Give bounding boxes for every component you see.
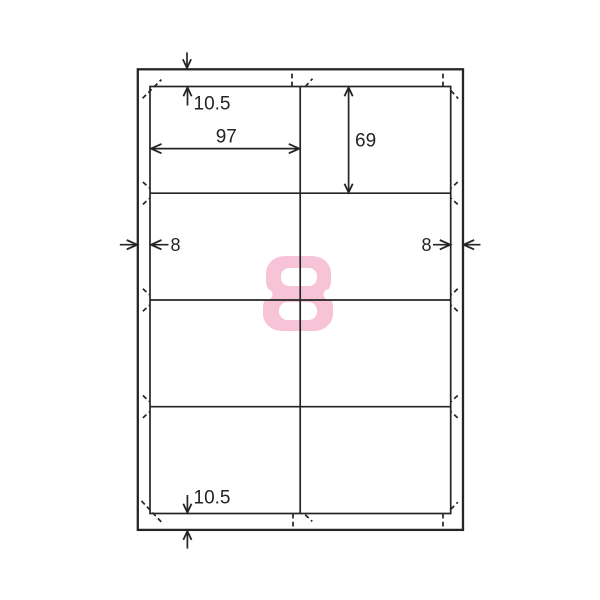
svg-text:69: 69	[355, 130, 376, 151]
svg-text:10.5: 10.5	[194, 487, 231, 508]
svg-text:8: 8	[422, 235, 432, 255]
svg-text:10.5: 10.5	[194, 93, 231, 114]
svg-text:97: 97	[216, 126, 237, 147]
svg-text:8: 8	[171, 235, 181, 255]
